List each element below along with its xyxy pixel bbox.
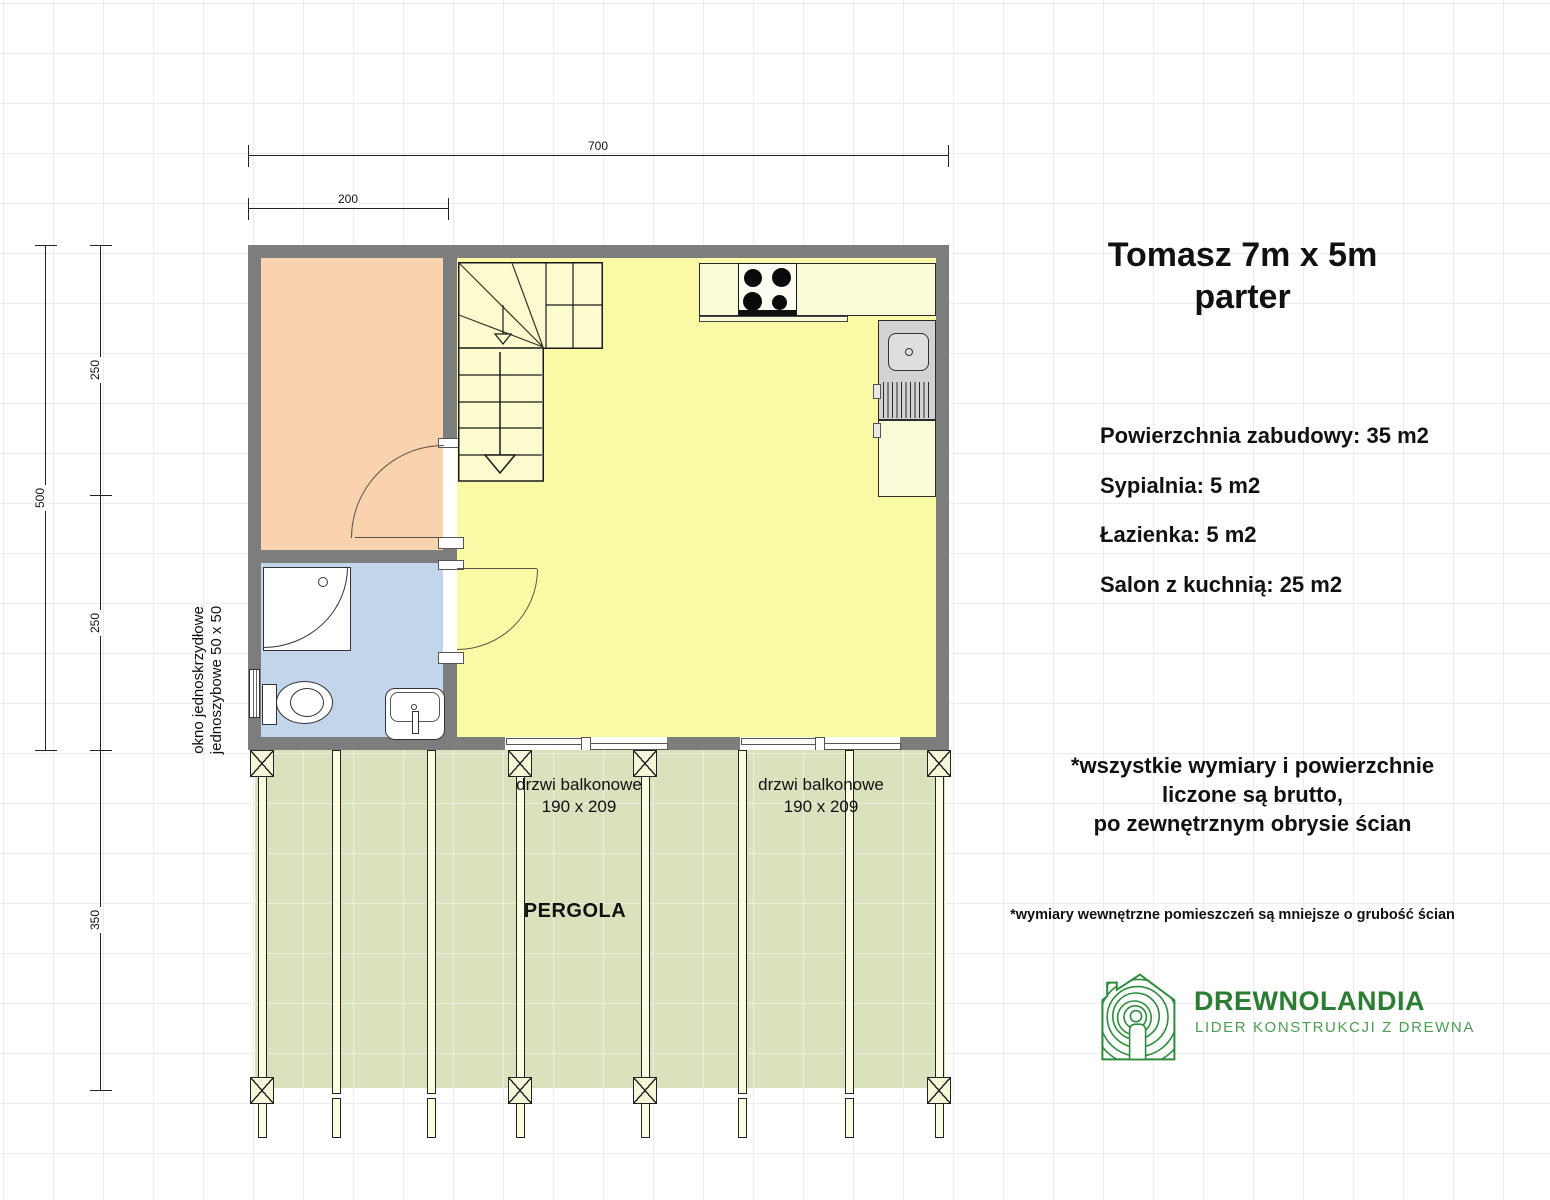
pergola-post-marker-icon: [508, 1077, 532, 1104]
dish-rack-icon: [883, 382, 932, 418]
sliding-door-panel: [741, 738, 822, 745]
dimension-line-pergola-depth: 350: [100, 750, 101, 1090]
dimension-tick: [948, 145, 949, 167]
logo-tagline: LIDER KONSTRUKCJI Z DREWNA: [1195, 1019, 1475, 1036]
kitchen-counter-edge: [699, 316, 848, 322]
gross-dimensions-note: *wszystkie wymiary i powierzchnie liczon…: [1030, 751, 1475, 838]
dimension-line-total-height: 500: [45, 245, 46, 750]
stairs-icon: [458, 262, 603, 482]
dimension-label-lower-height: 250: [88, 609, 102, 635]
pergola-rafter: [332, 750, 341, 1094]
balcony-door-opening: [505, 737, 667, 750]
balcony-door-label: drzwi balkonowe 190 x 209: [479, 774, 679, 818]
pergola-post-marker-icon: [927, 750, 951, 777]
balcony-door-opening: [740, 737, 900, 750]
window-annotation-line1: okno jednoskrzydłowe: [190, 590, 208, 770]
logo-name: DREWNOLANDIA: [1194, 986, 1425, 1017]
pergola-post-marker-icon: [508, 750, 532, 777]
page-title-line1: Tomasz 7m x 5m: [1040, 234, 1445, 276]
door-jamb: [438, 537, 464, 549]
stove-burner-icon: [772, 268, 791, 287]
toilet-tank-icon: [262, 684, 277, 725]
pergola-rafter-end: [427, 1098, 436, 1138]
pergola-rafter-end: [935, 1098, 944, 1138]
pergola-rafter: [427, 750, 436, 1094]
stove-burner-icon: [772, 295, 787, 310]
gross-note-line3: po zewnętrznym obrysie ścian: [1030, 809, 1475, 838]
dimension-tick: [90, 245, 112, 246]
kitchen-counter: [699, 263, 936, 316]
pergola-post-marker-icon: [633, 750, 657, 777]
dimension-tick: [35, 245, 57, 246]
pergola-rafter-end: [516, 1098, 525, 1138]
cabinet-handle: [873, 384, 881, 399]
dimension-tick: [248, 145, 249, 167]
dimension-tick: [35, 750, 57, 751]
balcony-door-label-line2: 190 x 209: [716, 796, 926, 818]
pergola-rafter-end: [641, 1098, 650, 1138]
drewnolandia-logo-icon: [1096, 973, 1184, 1061]
washbasin-hole-icon: [411, 704, 417, 710]
bathroom-window-icon: [249, 669, 260, 718]
building-plan: [248, 245, 949, 750]
cabinet-handle: [873, 423, 881, 438]
window-annotation: okno jednoskrzydłowe jednoszybowe 50 x 5…: [190, 590, 226, 770]
floor-plan-sheet: { "title": { "line1": "Tomasz 7m x 5m", …: [0, 0, 1550, 1200]
sliding-door-panel: [818, 743, 901, 750]
pergola-rafter: [258, 750, 267, 1094]
gross-note-line1: *wszystkie wymiary i powierzchnie: [1030, 751, 1475, 780]
info-bathroom-area: Łazienka: 5 m2: [1100, 522, 1257, 548]
dimension-line-total-width: 700: [248, 155, 948, 156]
dimension-tick: [90, 1090, 112, 1091]
sliding-door-panel: [506, 738, 588, 745]
stove-burner-icon: [744, 269, 762, 287]
gross-note-line2: liczone są brutto,: [1030, 780, 1475, 809]
balcony-door-label: drzwi balkonowe 190 x 209: [716, 774, 926, 818]
sliding-door-stile: [581, 737, 591, 751]
bedroom-door-opening: [443, 445, 457, 538]
dimension-label-total-height: 500: [33, 484, 47, 510]
dimension-label-bedroom-width: 200: [335, 192, 361, 206]
pergola-rafter-end: [258, 1098, 267, 1138]
shower-drain-icon: [318, 577, 328, 587]
pergola-label: PERGOLA: [460, 900, 690, 923]
balcony-door-label-line1: drzwi balkonowe: [716, 774, 926, 796]
pergola-post-marker-icon: [927, 1077, 951, 1104]
door-jamb: [438, 652, 464, 664]
washbasin-tap-icon: [412, 711, 419, 734]
dimension-line-bedroom-width: 200: [248, 208, 448, 209]
sliding-door-stile: [815, 737, 825, 751]
dimension-line-lower-height: 250: [100, 495, 101, 750]
stove-icon: [738, 263, 797, 316]
stove-burner-icon: [743, 292, 762, 311]
bathroom-door-opening: [443, 568, 457, 653]
info-living-area: Salon z kuchnią: 25 m2: [1100, 572, 1342, 598]
dimension-tick: [448, 198, 449, 220]
dimension-tick: [90, 495, 112, 496]
info-total-area: Powierzchnia zabudowy: 35 m2: [1100, 423, 1429, 449]
dimension-label-pergola-depth: 350: [88, 907, 102, 933]
toilet-bowl-inner: [290, 688, 324, 717]
page-title: Tomasz 7m x 5m parter: [1040, 234, 1445, 318]
sink-drain-icon: [905, 348, 913, 356]
dimension-tick: [248, 198, 249, 220]
page-title-line2: parter: [1040, 276, 1445, 318]
sliding-door-panel: [584, 743, 668, 750]
balcony-door-label-line2: 190 x 209: [479, 796, 679, 818]
dimension-line-upper-height: 250: [100, 245, 101, 495]
dimension-label-upper-height: 250: [88, 357, 102, 383]
pergola-rafter-end: [332, 1098, 341, 1138]
pergola-rafter-end: [738, 1098, 747, 1138]
pergola-rafter: [935, 750, 944, 1094]
pergola-post-marker-icon: [250, 750, 274, 777]
dimension-tick: [90, 750, 112, 751]
window-annotation-line2: jednoszybowe 50 x 50: [208, 590, 226, 770]
info-bedroom-area: Sypialnia: 5 m2: [1100, 473, 1260, 499]
pergola-post-marker-icon: [633, 1077, 657, 1104]
balcony-door-label-line1: drzwi balkonowe: [479, 774, 679, 796]
internal-dimensions-note: *wymiary wewnętrzne pomieszczeń są mniej…: [1010, 907, 1455, 923]
dimension-label-total-width: 700: [585, 139, 611, 153]
pergola-rafter-end: [845, 1098, 854, 1138]
pergola-post-marker-icon: [250, 1077, 274, 1104]
kitchen-cabinet: [878, 420, 936, 497]
